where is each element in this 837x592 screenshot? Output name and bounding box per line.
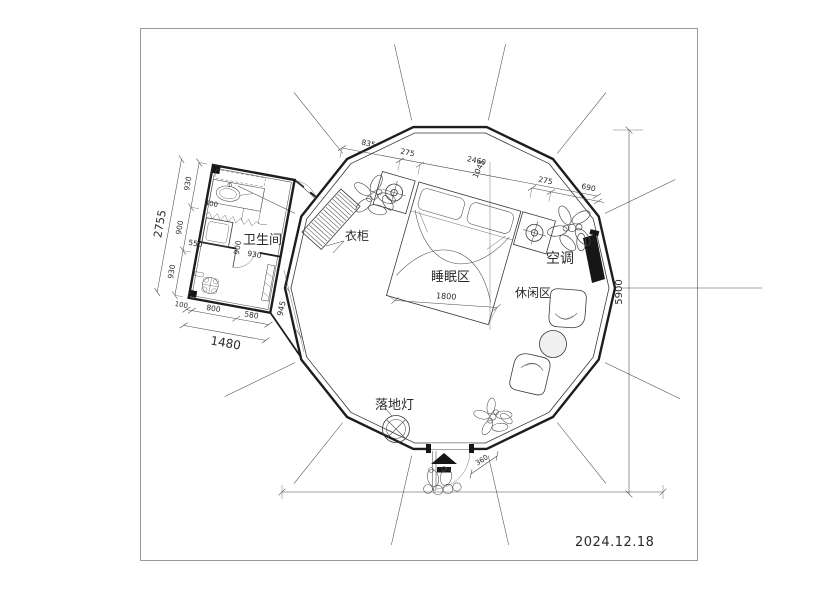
nightstand-right bbox=[513, 212, 555, 254]
column bbox=[190, 290, 198, 298]
dim-5900: 5900 bbox=[614, 279, 625, 304]
bed bbox=[386, 182, 520, 325]
entrance bbox=[424, 443, 474, 495]
bathroom-label: 卫生间 bbox=[243, 233, 282, 248]
dim-930-inner: 930 bbox=[247, 249, 263, 260]
wardrobe-label: 衣柜 bbox=[345, 228, 369, 243]
shoes bbox=[424, 467, 462, 495]
dim-835: 835 bbox=[361, 138, 377, 150]
floor-plan-drawing: 卫生间 衣柜 睡眠区 空调 休闲区 落地灯 835 275 2460 1045 … bbox=[0, 0, 837, 592]
shower-curtain bbox=[205, 212, 261, 228]
dim-945: 945 bbox=[275, 300, 287, 317]
sleeping-area-label: 睡眠区 bbox=[431, 270, 470, 285]
door-jamb bbox=[469, 444, 474, 453]
armchair-bottom bbox=[508, 351, 552, 396]
armchair-top bbox=[548, 288, 587, 328]
side-table bbox=[540, 331, 567, 358]
wardrobe-leader bbox=[326, 241, 344, 253]
dim-275: 275 bbox=[400, 147, 416, 159]
dim-930-b: 930 bbox=[166, 264, 177, 280]
air-conditioner-unit bbox=[583, 234, 605, 283]
ac-cap bbox=[589, 229, 599, 236]
dim-580: 580 bbox=[244, 309, 260, 320]
leisure-area-label: 休闲区 bbox=[515, 286, 551, 300]
pillow bbox=[417, 187, 466, 221]
dim-900: 900 bbox=[174, 220, 185, 236]
plant bbox=[352, 173, 397, 217]
air-conditioner-label: 空调 bbox=[546, 251, 574, 267]
dim-800: 800 bbox=[206, 303, 222, 314]
floor-plan-page: 卫生间 衣柜 睡眠区 空调 休闲区 落地灯 835 275 2460 1045 … bbox=[0, 0, 837, 592]
sheet-date: 2024.12.18 bbox=[575, 535, 654, 550]
bed-group bbox=[350, 172, 556, 335]
dim-930-a: 930 bbox=[182, 176, 193, 192]
dim-275-right: 275 bbox=[538, 175, 554, 187]
dim-1480: 1480 bbox=[209, 334, 242, 353]
yurt-wall bbox=[285, 127, 615, 449]
dim-100: 100 bbox=[174, 300, 189, 310]
dim-1800: 1800 bbox=[436, 291, 457, 301]
dim-360: 360 bbox=[474, 453, 490, 467]
dim-690: 690 bbox=[581, 182, 597, 194]
door-jamb bbox=[426, 444, 431, 453]
dim-900-inner: 900 bbox=[232, 240, 243, 256]
floor-lamp-label: 落地灯 bbox=[375, 398, 414, 413]
floor-drain bbox=[201, 276, 220, 295]
radial-guide-lines bbox=[225, 44, 762, 545]
column bbox=[212, 166, 220, 174]
pillow bbox=[466, 201, 515, 235]
dim-2755: 2755 bbox=[151, 209, 169, 239]
dim-550: 550 bbox=[188, 238, 204, 249]
plant bbox=[468, 391, 517, 440]
washer bbox=[202, 218, 233, 247]
nightstand-left bbox=[373, 172, 415, 214]
